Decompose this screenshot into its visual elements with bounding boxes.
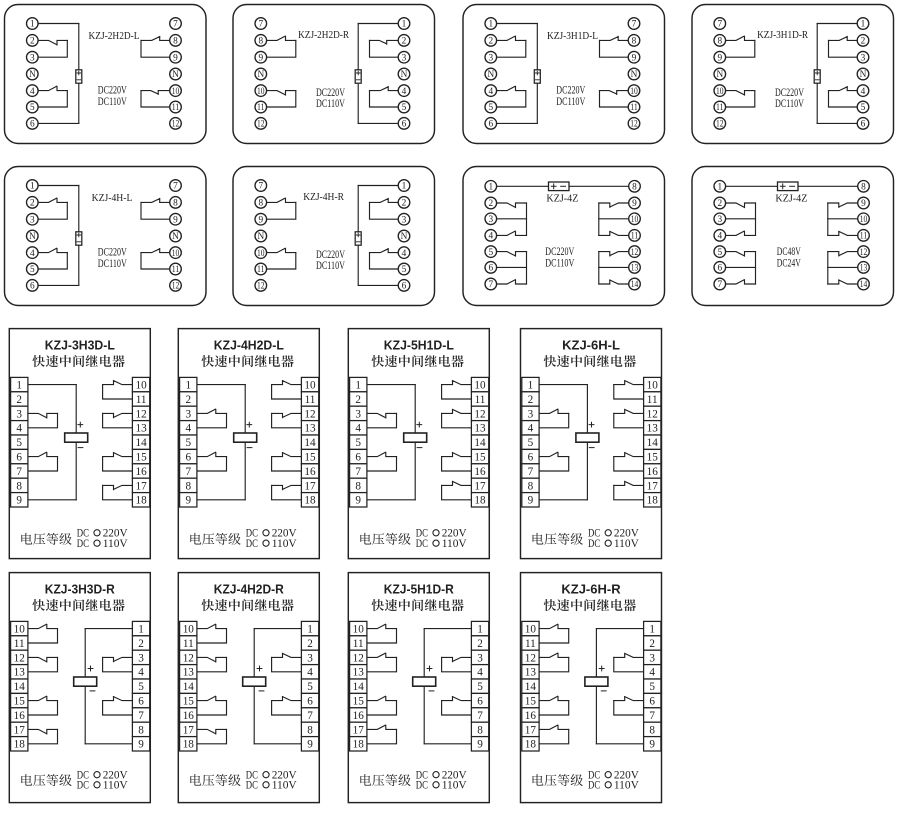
svg-text:7: 7 bbox=[258, 182, 263, 192]
svg-text:KZJ-3H3D-L: KZJ-3H3D-L bbox=[45, 338, 115, 353]
svg-text:11: 11 bbox=[257, 265, 265, 275]
svg-text:DC: DC bbox=[588, 536, 600, 550]
svg-text:KZJ-4H2D-R: KZJ-4H2D-R bbox=[214, 582, 285, 597]
svg-text:18: 18 bbox=[183, 739, 195, 751]
svg-text:KZJ-3H3D-R: KZJ-3H3D-R bbox=[45, 582, 116, 597]
svg-text:13: 13 bbox=[860, 264, 868, 274]
svg-text:13: 13 bbox=[647, 423, 659, 435]
svg-text:DC: DC bbox=[77, 536, 89, 550]
svg-text:6: 6 bbox=[488, 120, 493, 130]
svg-text:3: 3 bbox=[307, 652, 313, 664]
svg-text:2: 2 bbox=[861, 37, 866, 47]
svg-text:7: 7 bbox=[186, 466, 192, 478]
svg-text:3: 3 bbox=[717, 215, 722, 225]
svg-text:5: 5 bbox=[477, 681, 483, 693]
svg-text:7: 7 bbox=[649, 710, 655, 722]
svg-text:8: 8 bbox=[355, 480, 361, 492]
svg-text:N: N bbox=[487, 70, 494, 80]
svg-text:DC: DC bbox=[588, 778, 600, 792]
svg-text:4: 4 bbox=[488, 232, 493, 242]
svg-text:3: 3 bbox=[488, 53, 493, 63]
svg-text:10: 10 bbox=[136, 380, 148, 392]
svg-text:4: 4 bbox=[30, 87, 35, 97]
svg-text:2: 2 bbox=[355, 394, 361, 406]
svg-text:11: 11 bbox=[630, 103, 638, 113]
svg-text:2: 2 bbox=[138, 638, 144, 650]
svg-text:10: 10 bbox=[172, 249, 180, 259]
svg-text:1: 1 bbox=[717, 183, 722, 193]
svg-text:7: 7 bbox=[717, 20, 722, 30]
svg-text:N: N bbox=[257, 70, 264, 80]
svg-text:15: 15 bbox=[647, 452, 659, 464]
svg-text:17: 17 bbox=[647, 480, 659, 492]
svg-text:DC: DC bbox=[77, 778, 89, 792]
svg-text:8: 8 bbox=[649, 724, 655, 736]
svg-text:10: 10 bbox=[304, 380, 316, 392]
svg-text:110V: 110V bbox=[103, 536, 128, 550]
svg-text:5: 5 bbox=[402, 103, 407, 113]
svg-text:11: 11 bbox=[14, 638, 25, 650]
svg-text:10: 10 bbox=[630, 87, 638, 97]
svg-text:12: 12 bbox=[172, 120, 180, 130]
svg-text:13: 13 bbox=[304, 423, 316, 435]
svg-text:KZJ-3H1D-R: KZJ-3H1D-R bbox=[757, 29, 809, 41]
svg-text:110V: 110V bbox=[442, 778, 467, 792]
svg-text:6: 6 bbox=[402, 120, 407, 130]
svg-text:4: 4 bbox=[402, 87, 407, 97]
svg-text:4: 4 bbox=[488, 87, 493, 97]
svg-text:12: 12 bbox=[353, 652, 364, 664]
svg-text:10: 10 bbox=[860, 215, 868, 225]
svg-text:110V: 110V bbox=[442, 536, 467, 550]
svg-text:18: 18 bbox=[647, 495, 659, 507]
svg-text:3: 3 bbox=[30, 215, 35, 225]
svg-text:DC110V: DC110V bbox=[316, 258, 345, 272]
svg-text:1: 1 bbox=[402, 182, 407, 192]
svg-text:12: 12 bbox=[257, 282, 265, 292]
svg-text:110V: 110V bbox=[614, 778, 639, 792]
svg-text:7: 7 bbox=[173, 182, 178, 192]
svg-text:6: 6 bbox=[186, 452, 192, 464]
svg-text:3: 3 bbox=[355, 408, 361, 420]
svg-text:9: 9 bbox=[173, 53, 178, 63]
svg-text:8: 8 bbox=[16, 480, 22, 492]
svg-text:8: 8 bbox=[258, 37, 263, 47]
svg-text:8: 8 bbox=[632, 183, 637, 193]
svg-text:2: 2 bbox=[402, 199, 407, 209]
svg-text:10: 10 bbox=[183, 624, 195, 636]
svg-text:6: 6 bbox=[30, 120, 35, 130]
svg-text:11: 11 bbox=[525, 638, 536, 650]
svg-text:3: 3 bbox=[30, 53, 35, 63]
svg-text:1: 1 bbox=[528, 380, 534, 392]
svg-text:11: 11 bbox=[475, 394, 486, 406]
svg-text:N: N bbox=[631, 70, 638, 80]
svg-text:5: 5 bbox=[717, 248, 722, 258]
svg-text:DC110V: DC110V bbox=[316, 96, 345, 110]
svg-text:9: 9 bbox=[173, 215, 178, 225]
svg-text:16: 16 bbox=[14, 710, 26, 722]
svg-text:17: 17 bbox=[183, 724, 195, 736]
svg-text:3: 3 bbox=[16, 408, 22, 420]
svg-text:5: 5 bbox=[861, 103, 866, 113]
svg-text:17: 17 bbox=[136, 480, 148, 492]
svg-text:14: 14 bbox=[353, 681, 365, 693]
svg-text:17: 17 bbox=[304, 480, 316, 492]
svg-text:10: 10 bbox=[716, 87, 724, 97]
svg-text:14: 14 bbox=[647, 437, 659, 449]
svg-text:10: 10 bbox=[172, 87, 180, 97]
svg-text:12: 12 bbox=[183, 652, 194, 664]
svg-text:14: 14 bbox=[474, 437, 486, 449]
svg-text:5: 5 bbox=[649, 681, 655, 693]
svg-text:11: 11 bbox=[631, 232, 639, 242]
svg-text:DC110V: DC110V bbox=[98, 94, 127, 108]
svg-text:4: 4 bbox=[477, 667, 483, 679]
svg-text:KZJ-4H2D-L: KZJ-4H2D-L bbox=[214, 338, 284, 353]
svg-text:10: 10 bbox=[257, 249, 265, 259]
svg-text:11: 11 bbox=[172, 103, 180, 113]
svg-text:14: 14 bbox=[525, 681, 537, 693]
svg-text:18: 18 bbox=[474, 495, 486, 507]
svg-text:1: 1 bbox=[186, 380, 192, 392]
svg-text:8: 8 bbox=[173, 37, 178, 47]
svg-text:7: 7 bbox=[488, 280, 493, 290]
svg-text:15: 15 bbox=[353, 696, 365, 708]
svg-text:DC: DC bbox=[246, 778, 258, 792]
svg-text:2: 2 bbox=[477, 638, 483, 650]
svg-text:3: 3 bbox=[477, 652, 483, 664]
svg-text:10: 10 bbox=[14, 624, 26, 636]
svg-text:12: 12 bbox=[14, 652, 25, 664]
svg-text:9: 9 bbox=[528, 495, 534, 507]
svg-text:2: 2 bbox=[488, 199, 493, 209]
svg-text:11: 11 bbox=[183, 638, 194, 650]
svg-text:18: 18 bbox=[353, 739, 365, 751]
svg-text:9: 9 bbox=[258, 215, 263, 225]
svg-text:5: 5 bbox=[488, 103, 493, 113]
svg-text:4: 4 bbox=[30, 249, 35, 259]
svg-text:13: 13 bbox=[525, 667, 537, 679]
svg-text:5: 5 bbox=[402, 265, 407, 275]
svg-text:6: 6 bbox=[402, 282, 407, 292]
svg-text:N: N bbox=[29, 70, 36, 80]
svg-text:11: 11 bbox=[647, 394, 658, 406]
svg-text:18: 18 bbox=[525, 739, 537, 751]
svg-text:6: 6 bbox=[16, 452, 22, 464]
svg-text:5: 5 bbox=[186, 437, 192, 449]
svg-text:6: 6 bbox=[355, 452, 361, 464]
svg-text:5: 5 bbox=[307, 681, 313, 693]
svg-text:10: 10 bbox=[631, 215, 639, 225]
svg-text:2: 2 bbox=[528, 394, 534, 406]
svg-text:DC110V: DC110V bbox=[98, 256, 127, 270]
svg-text:9: 9 bbox=[16, 495, 22, 507]
svg-text:1: 1 bbox=[861, 20, 866, 30]
svg-text:1: 1 bbox=[16, 380, 22, 392]
svg-text:2: 2 bbox=[307, 638, 313, 650]
svg-text:14: 14 bbox=[304, 437, 316, 449]
svg-text:12: 12 bbox=[525, 652, 536, 664]
svg-text:16: 16 bbox=[474, 466, 486, 478]
svg-text:13: 13 bbox=[136, 423, 148, 435]
svg-text:KZJ-4Z: KZJ-4Z bbox=[775, 193, 807, 205]
svg-text:N: N bbox=[172, 232, 179, 242]
svg-text:18: 18 bbox=[14, 739, 26, 751]
svg-text:4: 4 bbox=[16, 423, 22, 435]
svg-text:DC: DC bbox=[246, 536, 258, 550]
svg-text:9: 9 bbox=[649, 739, 655, 751]
svg-text:6: 6 bbox=[861, 120, 866, 130]
svg-text:7: 7 bbox=[717, 280, 722, 290]
svg-text:17: 17 bbox=[14, 724, 26, 736]
svg-text:11: 11 bbox=[305, 394, 316, 406]
svg-text:13: 13 bbox=[353, 667, 365, 679]
svg-text:110V: 110V bbox=[272, 536, 297, 550]
svg-text:9: 9 bbox=[307, 739, 313, 751]
svg-text:17: 17 bbox=[353, 724, 365, 736]
svg-text:4: 4 bbox=[528, 423, 534, 435]
svg-text:7: 7 bbox=[355, 466, 361, 478]
svg-text:110V: 110V bbox=[614, 536, 639, 550]
svg-text:16: 16 bbox=[525, 710, 537, 722]
svg-text:9: 9 bbox=[477, 739, 483, 751]
svg-text:9: 9 bbox=[632, 53, 637, 63]
svg-text:3: 3 bbox=[861, 53, 866, 63]
svg-text:6: 6 bbox=[528, 452, 534, 464]
svg-text:14: 14 bbox=[183, 681, 195, 693]
svg-text:N: N bbox=[401, 232, 408, 242]
svg-text:11: 11 bbox=[257, 103, 265, 113]
svg-text:2: 2 bbox=[402, 37, 407, 47]
svg-text:6: 6 bbox=[488, 264, 493, 274]
svg-text:13: 13 bbox=[14, 667, 26, 679]
svg-text:9: 9 bbox=[138, 739, 144, 751]
svg-text:8: 8 bbox=[307, 724, 313, 736]
svg-text:2: 2 bbox=[488, 37, 493, 47]
svg-text:3: 3 bbox=[186, 408, 192, 420]
svg-text:DC24V: DC24V bbox=[777, 256, 801, 270]
svg-text:9: 9 bbox=[258, 53, 263, 63]
svg-text:8: 8 bbox=[861, 183, 866, 193]
svg-text:16: 16 bbox=[647, 466, 659, 478]
svg-text:16: 16 bbox=[304, 466, 316, 478]
svg-text:DC110V: DC110V bbox=[775, 96, 804, 110]
svg-text:3: 3 bbox=[402, 53, 407, 63]
svg-text:2: 2 bbox=[30, 199, 35, 209]
svg-text:5: 5 bbox=[16, 437, 22, 449]
svg-text:1: 1 bbox=[488, 183, 493, 193]
svg-text:9: 9 bbox=[861, 199, 866, 209]
svg-text:15: 15 bbox=[14, 696, 26, 708]
svg-text:10: 10 bbox=[474, 380, 486, 392]
svg-text:9: 9 bbox=[717, 53, 722, 63]
svg-text:7: 7 bbox=[307, 710, 313, 722]
svg-text:11: 11 bbox=[716, 103, 724, 113]
svg-text:15: 15 bbox=[136, 452, 148, 464]
svg-text:1: 1 bbox=[402, 20, 407, 30]
svg-text:3: 3 bbox=[528, 408, 534, 420]
svg-text:9: 9 bbox=[186, 495, 192, 507]
svg-text:1: 1 bbox=[138, 624, 144, 636]
svg-text:16: 16 bbox=[136, 466, 148, 478]
svg-text:KZJ-4H-L: KZJ-4H-L bbox=[92, 192, 133, 204]
svg-text:1: 1 bbox=[30, 20, 35, 30]
svg-text:8: 8 bbox=[186, 480, 192, 492]
svg-text:3: 3 bbox=[488, 215, 493, 225]
svg-text:DC: DC bbox=[416, 536, 428, 550]
svg-text:5: 5 bbox=[138, 681, 144, 693]
svg-text:4: 4 bbox=[186, 423, 192, 435]
svg-text:KZJ-5H1D-L: KZJ-5H1D-L bbox=[384, 338, 454, 353]
svg-text:6: 6 bbox=[717, 264, 722, 274]
svg-text:13: 13 bbox=[474, 423, 486, 435]
svg-text:5: 5 bbox=[30, 103, 35, 113]
svg-text:16: 16 bbox=[183, 710, 195, 722]
svg-text:2: 2 bbox=[30, 37, 35, 47]
svg-text:5: 5 bbox=[528, 437, 534, 449]
svg-text:8: 8 bbox=[477, 724, 483, 736]
svg-text:18: 18 bbox=[136, 495, 148, 507]
svg-text:7: 7 bbox=[528, 466, 534, 478]
svg-text:17: 17 bbox=[474, 480, 486, 492]
svg-text:5: 5 bbox=[30, 265, 35, 275]
svg-text:8: 8 bbox=[258, 199, 263, 209]
svg-text:11: 11 bbox=[172, 265, 180, 275]
svg-text:4: 4 bbox=[649, 667, 655, 679]
svg-text:7: 7 bbox=[632, 20, 637, 30]
svg-text:8: 8 bbox=[528, 480, 534, 492]
svg-text:7: 7 bbox=[173, 20, 178, 30]
svg-text:10: 10 bbox=[257, 87, 265, 97]
svg-text:15: 15 bbox=[304, 452, 316, 464]
svg-text:16: 16 bbox=[353, 710, 365, 722]
svg-text:3: 3 bbox=[402, 215, 407, 225]
svg-text:2: 2 bbox=[186, 394, 192, 406]
svg-text:9: 9 bbox=[355, 495, 361, 507]
svg-text:KZJ-2H2D-R: KZJ-2H2D-R bbox=[298, 29, 350, 41]
svg-text:5: 5 bbox=[355, 437, 361, 449]
svg-text:N: N bbox=[401, 70, 408, 80]
svg-text:N: N bbox=[257, 232, 264, 242]
svg-text:KZJ-5H1D-R: KZJ-5H1D-R bbox=[384, 582, 455, 597]
svg-text:1: 1 bbox=[355, 380, 361, 392]
svg-text:13: 13 bbox=[631, 264, 639, 274]
svg-text:6: 6 bbox=[477, 696, 483, 708]
svg-text:9: 9 bbox=[632, 199, 637, 209]
svg-text:DC: DC bbox=[416, 778, 428, 792]
svg-text:10: 10 bbox=[525, 624, 537, 636]
svg-text:1: 1 bbox=[477, 624, 483, 636]
svg-text:KZJ-6H-L: KZJ-6H-L bbox=[562, 338, 620, 353]
svg-text:2: 2 bbox=[16, 394, 22, 406]
svg-text:4: 4 bbox=[355, 423, 361, 435]
svg-text:1: 1 bbox=[307, 624, 313, 636]
svg-text:11: 11 bbox=[353, 638, 364, 650]
svg-text:3: 3 bbox=[649, 652, 655, 664]
svg-text:12: 12 bbox=[304, 408, 315, 420]
svg-text:14: 14 bbox=[14, 681, 26, 693]
svg-text:7: 7 bbox=[258, 20, 263, 30]
svg-text:18: 18 bbox=[304, 495, 316, 507]
svg-text:12: 12 bbox=[716, 120, 724, 130]
svg-text:12: 12 bbox=[860, 248, 868, 258]
svg-text:8: 8 bbox=[717, 37, 722, 47]
svg-text:7: 7 bbox=[16, 466, 22, 478]
svg-text:12: 12 bbox=[631, 248, 639, 258]
svg-text:6: 6 bbox=[649, 696, 655, 708]
svg-text:2: 2 bbox=[649, 638, 655, 650]
svg-text:4: 4 bbox=[138, 667, 144, 679]
svg-text:5: 5 bbox=[488, 248, 493, 258]
svg-text:10: 10 bbox=[353, 624, 365, 636]
svg-text:14: 14 bbox=[136, 437, 148, 449]
svg-text:2: 2 bbox=[717, 199, 722, 209]
svg-text:11: 11 bbox=[860, 232, 868, 242]
svg-text:7: 7 bbox=[477, 710, 483, 722]
svg-text:1: 1 bbox=[30, 182, 35, 192]
svg-text:7: 7 bbox=[138, 710, 144, 722]
svg-text:4: 4 bbox=[717, 232, 722, 242]
svg-text:4: 4 bbox=[861, 87, 866, 97]
svg-text:15: 15 bbox=[183, 696, 195, 708]
svg-text:N: N bbox=[172, 70, 179, 80]
svg-text:14: 14 bbox=[631, 280, 639, 290]
svg-text:12: 12 bbox=[136, 408, 147, 420]
svg-text:8: 8 bbox=[632, 37, 637, 47]
svg-text:12: 12 bbox=[647, 408, 658, 420]
svg-text:11: 11 bbox=[136, 394, 147, 406]
svg-text:DC110V: DC110V bbox=[556, 94, 585, 108]
svg-text:8: 8 bbox=[138, 724, 144, 736]
svg-text:110V: 110V bbox=[103, 778, 128, 792]
svg-text:14: 14 bbox=[860, 280, 868, 290]
svg-text:4: 4 bbox=[402, 249, 407, 259]
svg-text:1: 1 bbox=[488, 20, 493, 30]
svg-text:13: 13 bbox=[183, 667, 195, 679]
svg-text:110V: 110V bbox=[272, 778, 297, 792]
svg-text:N: N bbox=[716, 70, 723, 80]
svg-text:KZJ-3H1D-L: KZJ-3H1D-L bbox=[547, 30, 598, 42]
svg-text:4: 4 bbox=[307, 667, 313, 679]
svg-text:17: 17 bbox=[525, 724, 537, 736]
svg-text:3: 3 bbox=[138, 652, 144, 664]
svg-text:12: 12 bbox=[474, 408, 485, 420]
svg-text:15: 15 bbox=[474, 452, 486, 464]
svg-text:N: N bbox=[29, 232, 36, 242]
svg-text:10: 10 bbox=[647, 380, 659, 392]
svg-text:N: N bbox=[860, 70, 867, 80]
svg-text:KZJ-4Z: KZJ-4Z bbox=[546, 193, 578, 205]
svg-text:KZJ-6H-R: KZJ-6H-R bbox=[561, 582, 621, 597]
svg-text:6: 6 bbox=[138, 696, 144, 708]
svg-text:8: 8 bbox=[173, 199, 178, 209]
svg-text:15: 15 bbox=[525, 696, 537, 708]
svg-text:12: 12 bbox=[172, 282, 180, 292]
svg-text:12: 12 bbox=[257, 120, 265, 130]
svg-text:KZJ-2H2D-L: KZJ-2H2D-L bbox=[89, 30, 140, 42]
svg-text:KZJ-4H-R: KZJ-4H-R bbox=[303, 191, 344, 203]
svg-text:12: 12 bbox=[630, 120, 638, 130]
svg-text:DC110V: DC110V bbox=[545, 256, 574, 270]
svg-text:1: 1 bbox=[649, 624, 655, 636]
svg-text:6: 6 bbox=[307, 696, 313, 708]
svg-text:6: 6 bbox=[30, 282, 35, 292]
